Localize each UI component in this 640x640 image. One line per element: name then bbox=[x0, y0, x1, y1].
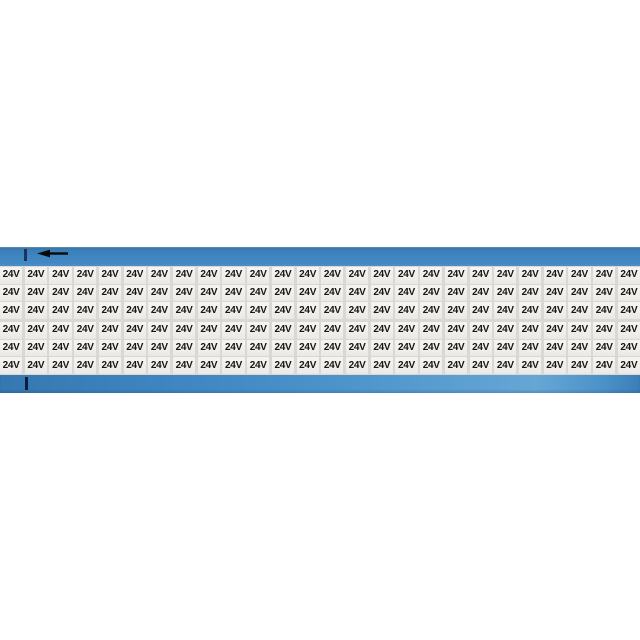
marker-text: 24V bbox=[176, 306, 193, 316]
marker-cell: 24V bbox=[74, 267, 96, 284]
marker-text: 24V bbox=[398, 361, 415, 371]
marker-cell: 24V bbox=[470, 322, 492, 339]
marker-cell: 24V bbox=[297, 267, 319, 284]
marker-cell: 24V bbox=[346, 302, 368, 319]
marker-text: 24V bbox=[423, 288, 440, 298]
marker-text: 24V bbox=[274, 343, 291, 353]
marker-text: 24V bbox=[274, 325, 291, 335]
marker-text: 24V bbox=[101, 270, 118, 280]
marker-cell: 24V bbox=[420, 302, 442, 319]
marker-text: 24V bbox=[225, 361, 242, 371]
marker-text: 24V bbox=[398, 306, 415, 316]
marker-text: 24V bbox=[274, 361, 291, 371]
marker-cell: 24V bbox=[247, 267, 269, 284]
marker-cell: 24V bbox=[544, 322, 566, 339]
marker-cell: 24V bbox=[49, 267, 71, 284]
marker-cell: 24V bbox=[593, 267, 615, 284]
marker-text: 24V bbox=[423, 325, 440, 335]
marker-cell: 24V bbox=[395, 357, 417, 374]
marker-text: 24V bbox=[324, 306, 341, 316]
marker-text: 24V bbox=[3, 306, 20, 316]
marker-cell: 24V bbox=[49, 285, 71, 302]
marker-text: 24V bbox=[324, 288, 341, 298]
marker-grid: 24V24V24V24V24V24V24V24V24V24V24V24V24V2… bbox=[0, 266, 640, 375]
marker-cell: 24V bbox=[198, 267, 220, 284]
marker-text: 24V bbox=[299, 288, 316, 298]
marker-cell: 24V bbox=[222, 285, 244, 302]
marker-cell: 24V bbox=[519, 302, 541, 319]
marker-text: 24V bbox=[497, 288, 514, 298]
marker-cell: 24V bbox=[420, 322, 442, 339]
marker-cell: 24V bbox=[124, 302, 146, 319]
marker-text: 24V bbox=[546, 343, 563, 353]
marker-text: 24V bbox=[472, 325, 489, 335]
marker-cell: 24V bbox=[198, 302, 220, 319]
marker-cell: 24V bbox=[297, 340, 319, 357]
marker-text: 24V bbox=[52, 270, 69, 280]
marker-text: 24V bbox=[151, 288, 168, 298]
marker-text: 24V bbox=[472, 306, 489, 316]
marker-cell: 24V bbox=[148, 285, 170, 302]
marker-text: 24V bbox=[324, 343, 341, 353]
marker-cell: 24V bbox=[148, 267, 170, 284]
marker-text: 24V bbox=[349, 270, 366, 280]
marker-text: 24V bbox=[596, 325, 613, 335]
marker-text: 24V bbox=[349, 361, 366, 371]
marker-text: 24V bbox=[151, 343, 168, 353]
marker-text: 24V bbox=[274, 270, 291, 280]
marker-cell: 24V bbox=[470, 357, 492, 374]
marker-row: 24V24V24V24V24V24V24V24V24V24V24V24V24V2… bbox=[0, 267, 640, 284]
marker-cell: 24V bbox=[395, 285, 417, 302]
marker-text: 24V bbox=[497, 343, 514, 353]
marker-text: 24V bbox=[27, 288, 44, 298]
marker-cell: 24V bbox=[346, 285, 368, 302]
marker-text: 24V bbox=[324, 325, 341, 335]
marker-text: 24V bbox=[373, 325, 390, 335]
marker-text: 24V bbox=[497, 361, 514, 371]
marker-cell: 24V bbox=[420, 340, 442, 357]
marker-cell: 24V bbox=[519, 285, 541, 302]
marker-text: 24V bbox=[200, 361, 217, 371]
marker-cell: 24V bbox=[593, 302, 615, 319]
marker-text: 24V bbox=[176, 361, 193, 371]
marker-text: 24V bbox=[200, 288, 217, 298]
marker-text: 24V bbox=[522, 343, 539, 353]
marker-cell: 24V bbox=[25, 285, 47, 302]
marker-text: 24V bbox=[447, 361, 464, 371]
marker-text: 24V bbox=[3, 361, 20, 371]
marker-cell: 24V bbox=[0, 267, 22, 284]
marker-text: 24V bbox=[250, 306, 267, 316]
marker-cell: 24V bbox=[618, 302, 640, 319]
marker-text: 24V bbox=[126, 325, 143, 335]
marker-text: 24V bbox=[101, 306, 118, 316]
marker-text: 24V bbox=[274, 306, 291, 316]
marker-text: 24V bbox=[299, 270, 316, 280]
marker-cell: 24V bbox=[0, 340, 22, 357]
marker-text: 24V bbox=[472, 361, 489, 371]
marker-cell: 24V bbox=[568, 285, 590, 302]
marker-cell: 24V bbox=[297, 285, 319, 302]
marker-cell: 24V bbox=[222, 340, 244, 357]
marker-cell: 24V bbox=[371, 340, 393, 357]
marker-cell: 24V bbox=[321, 322, 343, 339]
marker-text: 24V bbox=[27, 306, 44, 316]
marker-cell: 24V bbox=[371, 302, 393, 319]
marker-row: 24V24V24V24V24V24V24V24V24V24V24V24V24V2… bbox=[0, 340, 640, 357]
marker-text: 24V bbox=[151, 325, 168, 335]
marker-cell: 24V bbox=[593, 322, 615, 339]
marker-cell: 24V bbox=[74, 340, 96, 357]
marker-cell: 24V bbox=[568, 357, 590, 374]
marker-text: 24V bbox=[596, 343, 613, 353]
marker-cell: 24V bbox=[272, 340, 294, 357]
marker-text: 24V bbox=[349, 288, 366, 298]
marker-cell: 24V bbox=[618, 340, 640, 357]
marker-text: 24V bbox=[596, 361, 613, 371]
marker-cell: 24V bbox=[297, 357, 319, 374]
marker-text: 24V bbox=[398, 325, 415, 335]
marker-text: 24V bbox=[3, 270, 20, 280]
marker-cell: 24V bbox=[371, 267, 393, 284]
marker-text: 24V bbox=[571, 361, 588, 371]
marker-text: 24V bbox=[250, 361, 267, 371]
marker-text: 24V bbox=[77, 306, 94, 316]
marker-cell: 24V bbox=[25, 357, 47, 374]
marker-cell: 24V bbox=[544, 302, 566, 319]
marker-cell: 24V bbox=[519, 322, 541, 339]
marker-cell: 24V bbox=[519, 357, 541, 374]
marker-text: 24V bbox=[522, 306, 539, 316]
marker-cell: 24V bbox=[198, 340, 220, 357]
marker-text: 24V bbox=[52, 343, 69, 353]
marker-text: 24V bbox=[101, 343, 118, 353]
marker-cell: 24V bbox=[49, 302, 71, 319]
marker-text: 24V bbox=[620, 343, 637, 353]
marker-row: 24V24V24V24V24V24V24V24V24V24V24V24V24V2… bbox=[0, 322, 640, 339]
marker-text: 24V bbox=[522, 270, 539, 280]
card-top-band bbox=[0, 247, 640, 266]
marker-cell: 24V bbox=[198, 357, 220, 374]
marker-cell: 24V bbox=[445, 285, 467, 302]
marker-cell: 24V bbox=[346, 322, 368, 339]
registration-tick-bottom bbox=[25, 377, 28, 390]
marker-cell: 24V bbox=[297, 322, 319, 339]
marker-text: 24V bbox=[299, 306, 316, 316]
marker-cell: 24V bbox=[544, 285, 566, 302]
marker-cell: 24V bbox=[445, 322, 467, 339]
marker-text: 24V bbox=[299, 343, 316, 353]
marker-cell: 24V bbox=[99, 357, 121, 374]
marker-cell: 24V bbox=[222, 267, 244, 284]
marker-text: 24V bbox=[472, 270, 489, 280]
marker-cell: 24V bbox=[25, 302, 47, 319]
marker-text: 24V bbox=[620, 361, 637, 371]
marker-text: 24V bbox=[77, 343, 94, 353]
marker-cell: 24V bbox=[445, 302, 467, 319]
marker-cell: 24V bbox=[198, 285, 220, 302]
product-photo: 24V24V24V24V24V24V24V24V24V24V24V24V24V2… bbox=[0, 0, 640, 640]
marker-cell: 24V bbox=[0, 322, 22, 339]
marker-cell: 24V bbox=[494, 285, 516, 302]
marker-cell: 24V bbox=[494, 302, 516, 319]
marker-text: 24V bbox=[373, 270, 390, 280]
marker-text: 24V bbox=[522, 325, 539, 335]
marker-cell: 24V bbox=[544, 357, 566, 374]
marker-cell: 24V bbox=[470, 285, 492, 302]
marker-cell: 24V bbox=[395, 302, 417, 319]
marker-cell: 24V bbox=[568, 302, 590, 319]
marker-text: 24V bbox=[200, 325, 217, 335]
marker-text: 24V bbox=[176, 343, 193, 353]
marker-text: 24V bbox=[101, 288, 118, 298]
marker-cell: 24V bbox=[99, 322, 121, 339]
marker-text: 24V bbox=[571, 343, 588, 353]
marker-cell: 24V bbox=[618, 322, 640, 339]
marker-text: 24V bbox=[225, 325, 242, 335]
marker-text: 24V bbox=[176, 270, 193, 280]
marker-cell: 24V bbox=[74, 357, 96, 374]
marker-cell: 24V bbox=[519, 340, 541, 357]
marker-text: 24V bbox=[423, 361, 440, 371]
marker-cell: 24V bbox=[272, 357, 294, 374]
marker-cell: 24V bbox=[222, 302, 244, 319]
marker-text: 24V bbox=[3, 325, 20, 335]
marker-text: 24V bbox=[27, 325, 44, 335]
marker-text: 24V bbox=[423, 270, 440, 280]
marker-cell: 24V bbox=[420, 285, 442, 302]
marker-text: 24V bbox=[176, 325, 193, 335]
marker-text: 24V bbox=[200, 343, 217, 353]
marker-cell: 24V bbox=[593, 340, 615, 357]
marker-cell: 24V bbox=[618, 357, 640, 374]
marker-cell: 24V bbox=[99, 340, 121, 357]
marker-cell: 24V bbox=[395, 267, 417, 284]
marker-cell: 24V bbox=[593, 285, 615, 302]
marker-cell: 24V bbox=[593, 357, 615, 374]
marker-cell: 24V bbox=[49, 340, 71, 357]
marker-text: 24V bbox=[324, 270, 341, 280]
marker-text: 24V bbox=[200, 306, 217, 316]
marker-text: 24V bbox=[77, 361, 94, 371]
marker-text: 24V bbox=[324, 361, 341, 371]
marker-text: 24V bbox=[151, 361, 168, 371]
marker-cell: 24V bbox=[321, 285, 343, 302]
marker-cell: 24V bbox=[494, 322, 516, 339]
marker-text: 24V bbox=[522, 361, 539, 371]
left-arrow-icon bbox=[37, 248, 68, 259]
marker-text: 24V bbox=[373, 361, 390, 371]
marker-cell: 24V bbox=[371, 285, 393, 302]
marker-cell: 24V bbox=[173, 340, 195, 357]
marker-text: 24V bbox=[250, 288, 267, 298]
marker-text: 24V bbox=[27, 343, 44, 353]
marker-text: 24V bbox=[447, 343, 464, 353]
marker-text: 24V bbox=[250, 343, 267, 353]
marker-text: 24V bbox=[151, 306, 168, 316]
marker-text: 24V bbox=[126, 361, 143, 371]
marker-text: 24V bbox=[77, 288, 94, 298]
marker-cell: 24V bbox=[272, 302, 294, 319]
marker-text: 24V bbox=[546, 361, 563, 371]
marker-text: 24V bbox=[299, 325, 316, 335]
marker-cell: 24V bbox=[395, 322, 417, 339]
marker-cell: 24V bbox=[445, 340, 467, 357]
marker-text: 24V bbox=[200, 270, 217, 280]
marker-text: 24V bbox=[472, 288, 489, 298]
marker-cell: 24V bbox=[74, 285, 96, 302]
marker-text: 24V bbox=[497, 270, 514, 280]
marker-text: 24V bbox=[571, 288, 588, 298]
card-bottom-band bbox=[0, 375, 640, 393]
marker-cell: 24V bbox=[99, 267, 121, 284]
marker-cell: 24V bbox=[321, 267, 343, 284]
marker-text: 24V bbox=[398, 343, 415, 353]
marker-cell: 24V bbox=[25, 267, 47, 284]
marker-text: 24V bbox=[151, 270, 168, 280]
marker-cell: 24V bbox=[173, 285, 195, 302]
marker-cell: 24V bbox=[124, 357, 146, 374]
marker-text: 24V bbox=[571, 270, 588, 280]
marker-text: 24V bbox=[447, 325, 464, 335]
marker-text: 24V bbox=[126, 270, 143, 280]
marker-text: 24V bbox=[176, 288, 193, 298]
marker-cell: 24V bbox=[25, 340, 47, 357]
marker-cell: 24V bbox=[568, 322, 590, 339]
marker-cell: 24V bbox=[618, 285, 640, 302]
marker-text: 24V bbox=[398, 288, 415, 298]
marker-row: 24V24V24V24V24V24V24V24V24V24V24V24V24V2… bbox=[0, 302, 640, 319]
marker-text: 24V bbox=[349, 325, 366, 335]
marker-cell: 24V bbox=[568, 340, 590, 357]
marker-cell: 24V bbox=[494, 357, 516, 374]
marker-text: 24V bbox=[497, 306, 514, 316]
marker-cell: 24V bbox=[420, 357, 442, 374]
marker-cell: 24V bbox=[470, 267, 492, 284]
marker-cell: 24V bbox=[247, 322, 269, 339]
marker-cell: 24V bbox=[148, 302, 170, 319]
marker-cell: 24V bbox=[148, 340, 170, 357]
marker-text: 24V bbox=[596, 270, 613, 280]
marker-cell: 24V bbox=[371, 357, 393, 374]
marker-text: 24V bbox=[398, 270, 415, 280]
marker-text: 24V bbox=[299, 361, 316, 371]
marker-row: 24V24V24V24V24V24V24V24V24V24V24V24V24V2… bbox=[0, 357, 640, 374]
marker-cell: 24V bbox=[470, 302, 492, 319]
marker-cell: 24V bbox=[321, 357, 343, 374]
marker-text: 24V bbox=[126, 288, 143, 298]
marker-text: 24V bbox=[571, 306, 588, 316]
marker-text: 24V bbox=[447, 270, 464, 280]
marker-text: 24V bbox=[225, 343, 242, 353]
marker-text: 24V bbox=[620, 306, 637, 316]
marker-cell: 24V bbox=[346, 267, 368, 284]
marker-cell: 24V bbox=[124, 285, 146, 302]
marker-cell: 24V bbox=[494, 267, 516, 284]
marker-text: 24V bbox=[349, 306, 366, 316]
marker-cell: 24V bbox=[519, 267, 541, 284]
marker-cell: 24V bbox=[222, 322, 244, 339]
marker-text: 24V bbox=[52, 361, 69, 371]
marker-text: 24V bbox=[546, 325, 563, 335]
marker-cell: 24V bbox=[272, 267, 294, 284]
marker-cell: 24V bbox=[346, 357, 368, 374]
marker-cell: 24V bbox=[99, 302, 121, 319]
marker-cell: 24V bbox=[544, 340, 566, 357]
marker-text: 24V bbox=[250, 325, 267, 335]
marker-cell: 24V bbox=[124, 267, 146, 284]
marker-text: 24V bbox=[77, 325, 94, 335]
marker-cell: 24V bbox=[25, 322, 47, 339]
registration-tick-top bbox=[24, 249, 27, 261]
marker-cell: 24V bbox=[272, 285, 294, 302]
marker-text: 24V bbox=[77, 270, 94, 280]
marker-cell: 24V bbox=[173, 302, 195, 319]
marker-cell: 24V bbox=[0, 302, 22, 319]
marker-text: 24V bbox=[472, 343, 489, 353]
marker-cell: 24V bbox=[247, 340, 269, 357]
marker-text: 24V bbox=[225, 306, 242, 316]
marker-text: 24V bbox=[27, 270, 44, 280]
marker-text: 24V bbox=[126, 306, 143, 316]
marker-text: 24V bbox=[373, 288, 390, 298]
marker-cell: 24V bbox=[544, 267, 566, 284]
marker-cell: 24V bbox=[124, 322, 146, 339]
marker-cell: 24V bbox=[346, 340, 368, 357]
marker-text: 24V bbox=[620, 288, 637, 298]
marker-text: 24V bbox=[225, 270, 242, 280]
marker-text: 24V bbox=[373, 343, 390, 353]
marker-text: 24V bbox=[447, 306, 464, 316]
marker-cell: 24V bbox=[371, 322, 393, 339]
marker-text: 24V bbox=[596, 288, 613, 298]
marker-text: 24V bbox=[126, 343, 143, 353]
marker-text: 24V bbox=[3, 343, 20, 353]
marker-cell: 24V bbox=[297, 302, 319, 319]
marker-text: 24V bbox=[27, 361, 44, 371]
marker-cell: 24V bbox=[173, 357, 195, 374]
marker-cell: 24V bbox=[222, 357, 244, 374]
marker-cell: 24V bbox=[395, 340, 417, 357]
marker-text: 24V bbox=[497, 325, 514, 335]
marker-cell: 24V bbox=[420, 267, 442, 284]
marker-cell: 24V bbox=[124, 340, 146, 357]
marker-cell: 24V bbox=[0, 285, 22, 302]
marker-text: 24V bbox=[571, 325, 588, 335]
marker-cell: 24V bbox=[618, 267, 640, 284]
marker-text: 24V bbox=[423, 343, 440, 353]
marker-cell: 24V bbox=[568, 267, 590, 284]
marker-text: 24V bbox=[447, 288, 464, 298]
marker-text: 24V bbox=[373, 306, 390, 316]
marker-cell: 24V bbox=[445, 267, 467, 284]
marker-text: 24V bbox=[522, 288, 539, 298]
marker-cell: 24V bbox=[247, 285, 269, 302]
marker-cell: 24V bbox=[321, 302, 343, 319]
marker-cell: 24V bbox=[173, 322, 195, 339]
wire-marker-card: 24V24V24V24V24V24V24V24V24V24V24V24V24V2… bbox=[0, 247, 640, 393]
marker-text: 24V bbox=[52, 306, 69, 316]
marker-cell: 24V bbox=[74, 322, 96, 339]
marker-cell: 24V bbox=[99, 285, 121, 302]
marker-cell: 24V bbox=[198, 322, 220, 339]
marker-text: 24V bbox=[620, 270, 637, 280]
marker-text: 24V bbox=[620, 325, 637, 335]
marker-text: 24V bbox=[250, 270, 267, 280]
marker-cell: 24V bbox=[148, 357, 170, 374]
marker-cell: 24V bbox=[470, 340, 492, 357]
